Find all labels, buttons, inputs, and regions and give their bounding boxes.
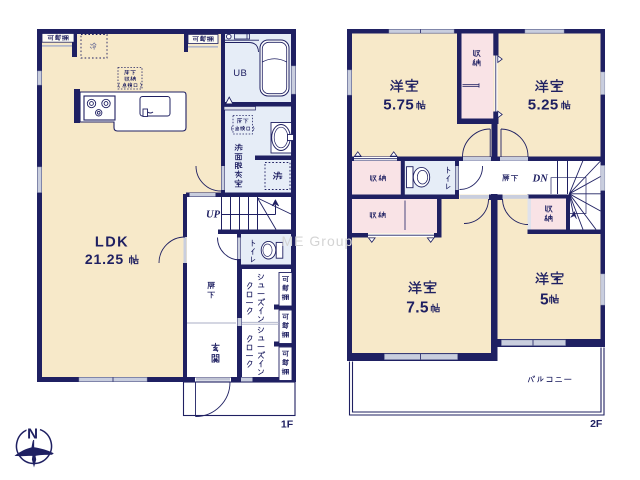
svg-text:7.5: 7.5: [406, 300, 429, 317]
svg-text:UP: UP: [206, 210, 221, 221]
svg-text:2F: 2F: [590, 418, 603, 430]
svg-text:N: N: [27, 426, 38, 443]
svg-text:ME Group: ME Group: [282, 233, 354, 249]
svg-text:5.75: 5.75: [383, 97, 414, 114]
svg-text:21.25: 21.25: [85, 251, 124, 267]
svg-text:1F: 1F: [281, 418, 294, 430]
svg-text:5: 5: [540, 291, 549, 308]
svg-text:5.25: 5.25: [528, 97, 559, 114]
svg-text:UB: UB: [233, 68, 247, 79]
svg-text:DN: DN: [532, 173, 549, 184]
svg-text:LDK: LDK: [95, 234, 129, 250]
